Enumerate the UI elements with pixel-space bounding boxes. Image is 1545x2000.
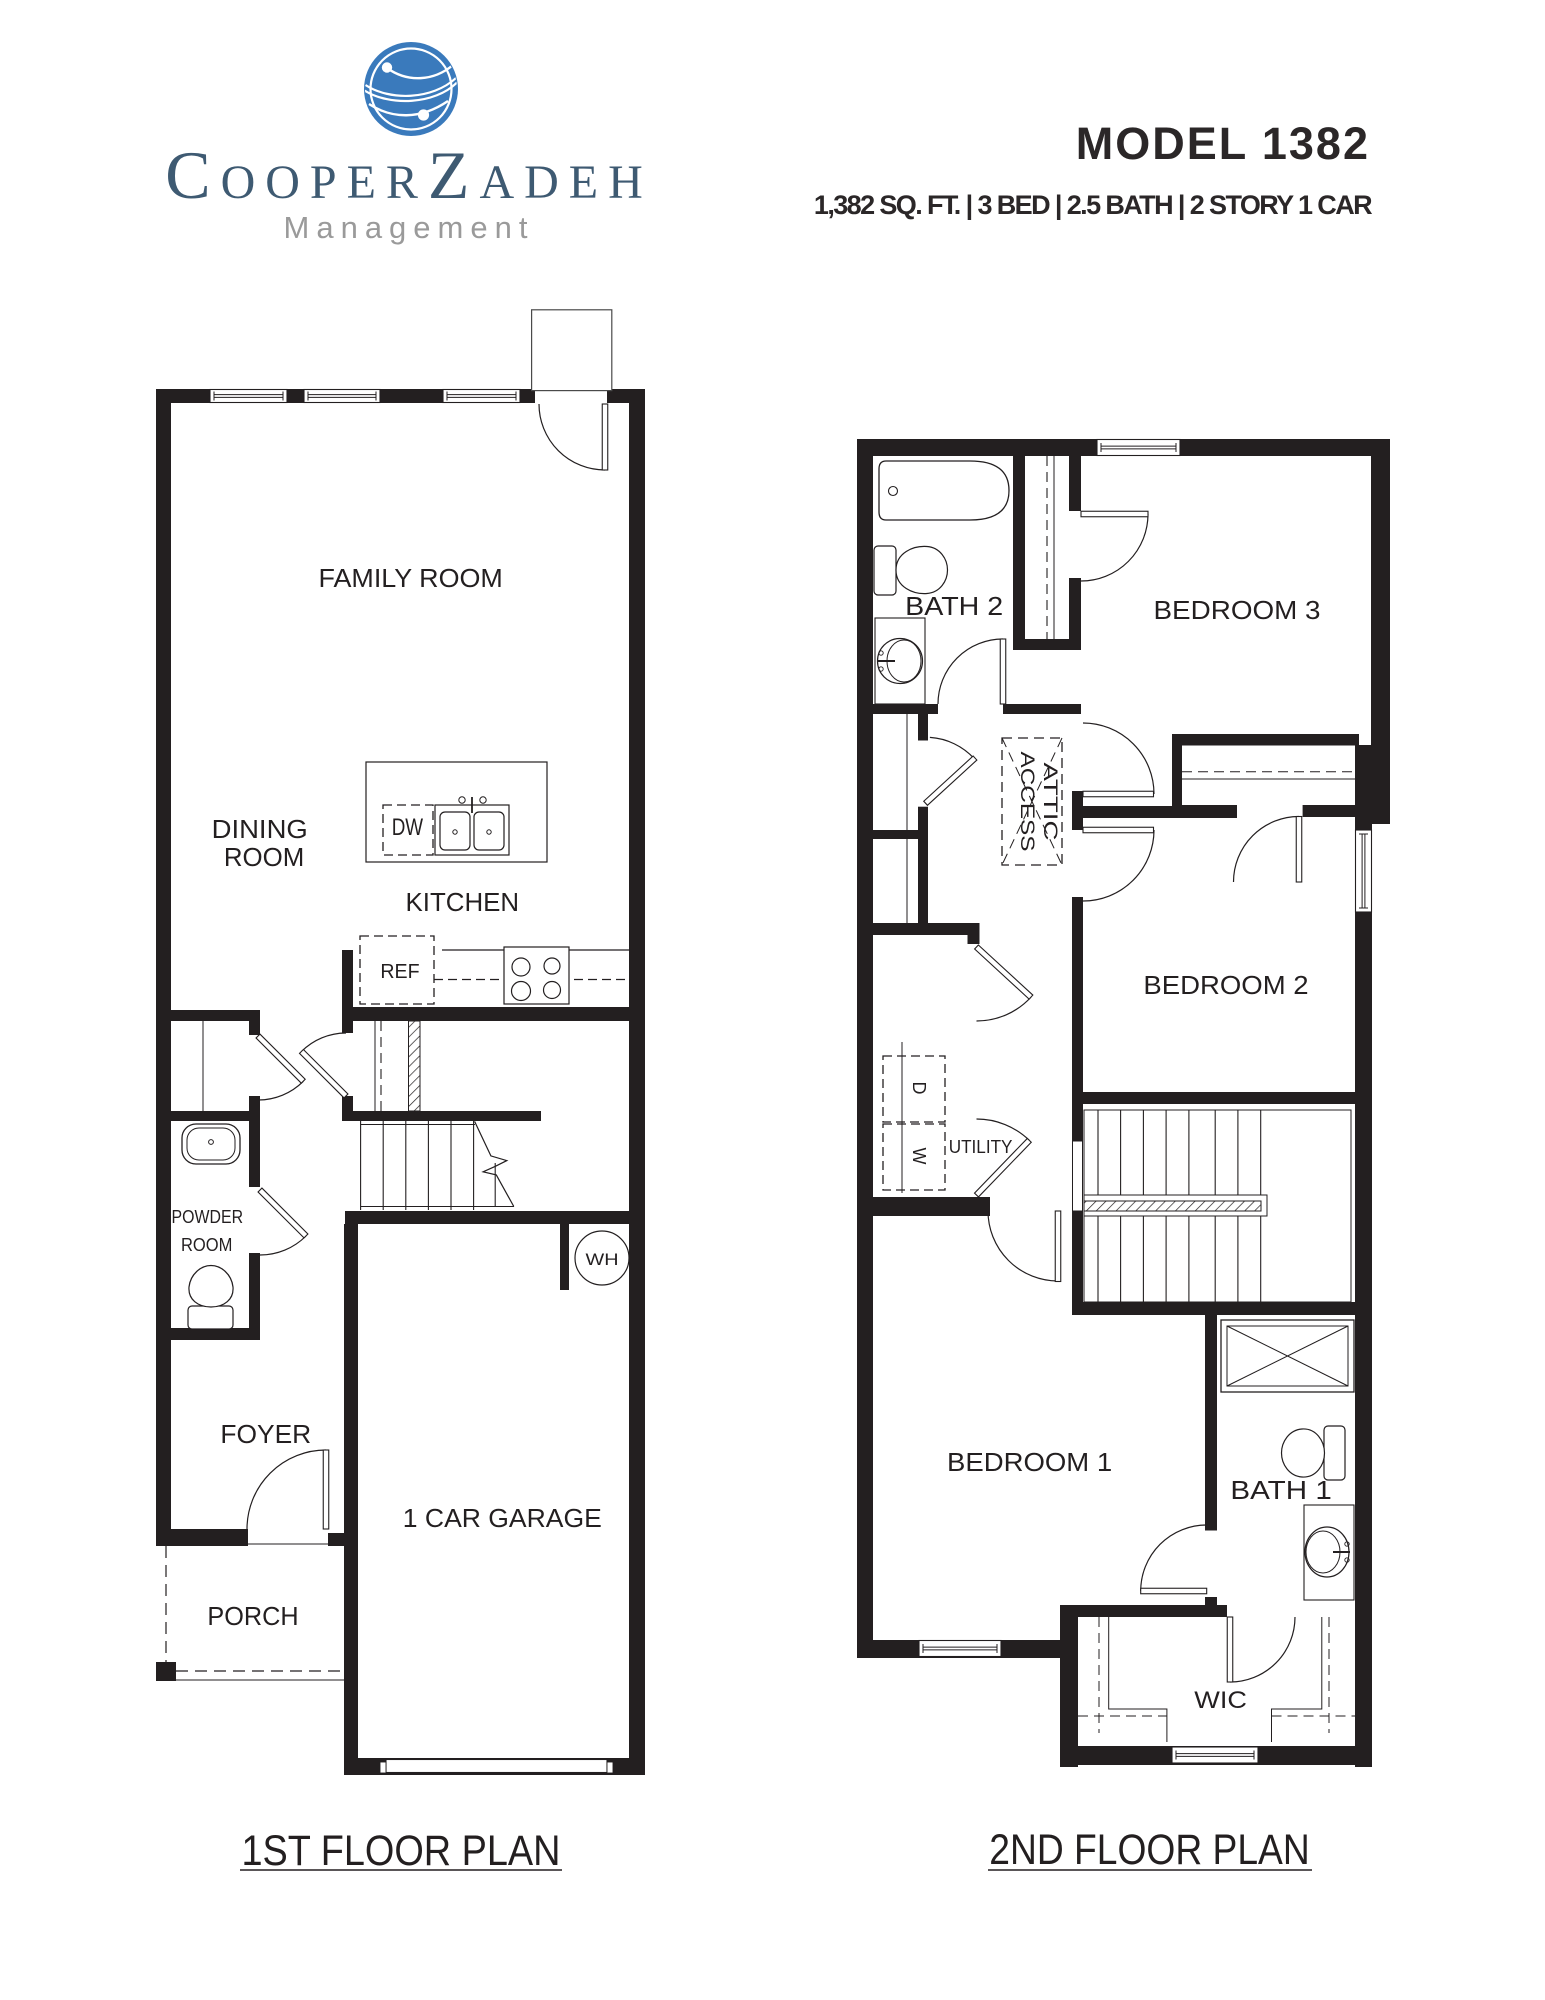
- svg-text:UTILITY: UTILITY: [949, 1137, 1013, 1157]
- svg-text:DINING: DINING: [212, 816, 308, 844]
- svg-text:1 CAR GARAGE: 1 CAR GARAGE: [403, 1505, 602, 1533]
- svg-text:KITCHEN: KITCHEN: [406, 889, 520, 917]
- svg-text:BATH 2: BATH 2: [905, 593, 1003, 621]
- svg-text:FAMILY ROOM: FAMILY ROOM: [319, 565, 503, 593]
- svg-text:DW: DW: [392, 814, 424, 841]
- svg-text:ROOM: ROOM: [224, 844, 304, 872]
- svg-text:FOYER: FOYER: [220, 1421, 311, 1449]
- svg-text:D: D: [909, 1082, 929, 1097]
- svg-text:BATH 1: BATH 1: [1230, 1477, 1331, 1505]
- svg-text:W: W: [909, 1148, 929, 1167]
- svg-text:BEDROOM 2: BEDROOM 2: [1143, 972, 1308, 1000]
- svg-text:ATTIC: ATTIC: [1039, 763, 1060, 841]
- svg-text:ACCESS: ACCESS: [1016, 752, 1037, 852]
- svg-text:2ND FLOOR PLAN: 2ND FLOOR PLAN: [989, 1826, 1309, 1874]
- svg-text:PORCH: PORCH: [207, 1603, 298, 1631]
- svg-text:WH: WH: [586, 1250, 619, 1269]
- svg-text:ROOM: ROOM: [181, 1235, 232, 1255]
- svg-text:WIC: WIC: [1194, 1687, 1247, 1714]
- svg-text:POWDER: POWDER: [172, 1207, 244, 1227]
- svg-text:REF: REF: [380, 961, 419, 983]
- svg-text:BEDROOM 1: BEDROOM 1: [947, 1449, 1112, 1477]
- svg-text:1ST FLOOR PLAN: 1ST FLOOR PLAN: [242, 1827, 561, 1875]
- svg-text:BEDROOM 3: BEDROOM 3: [1154, 597, 1321, 625]
